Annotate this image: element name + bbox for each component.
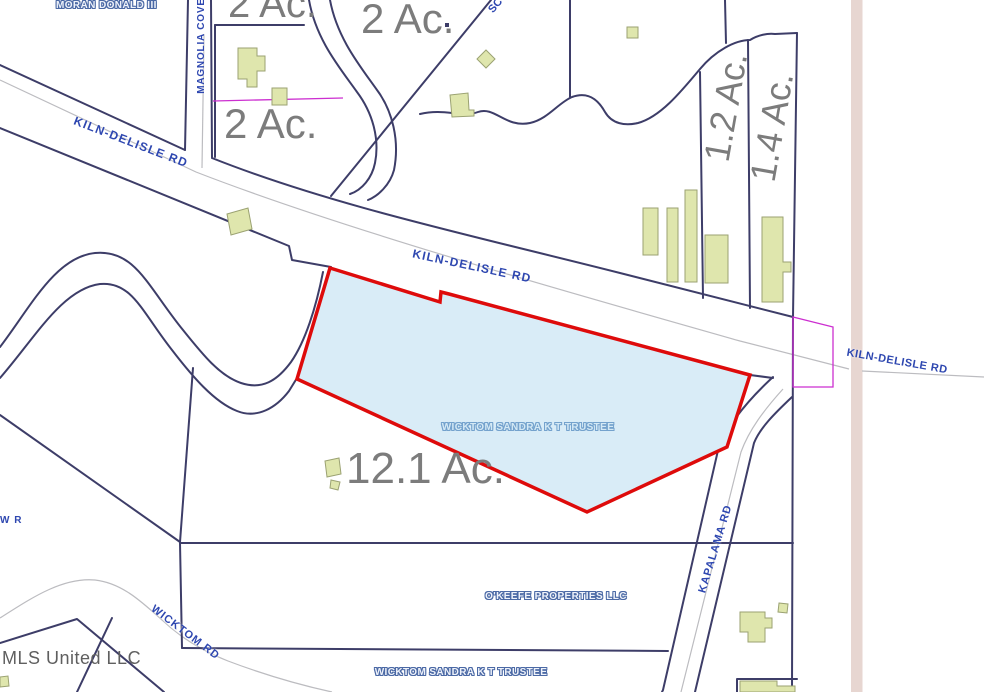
- parcel-line-horizontal-south: [182, 648, 668, 651]
- parcel-line-diagonal-west: [0, 415, 180, 542]
- acreage-label-top-center: 2 Ac.: [361, 0, 454, 40]
- building-footprint: [330, 480, 340, 490]
- road-label-magnolia-cove: MAGNOLIA COVE: [197, 0, 207, 94]
- acreage-label-top-left: 2 Ac.: [228, 0, 317, 24]
- owner-label-highlight-parcel: WICKTOM SANDRA K T TRUSTEE: [442, 423, 615, 433]
- boundary-stripe: [851, 0, 863, 692]
- magenta-polygon-east: [793, 317, 833, 387]
- building-footprint: [643, 208, 658, 255]
- parcel-map: MORAN DONALD III WICKTOM SANDRA K T TRUS…: [0, 0, 984, 692]
- building-footprint: [325, 458, 341, 477]
- building-footprint: [705, 235, 728, 283]
- building-footprint: [627, 27, 638, 38]
- building-footprint: [740, 681, 795, 692]
- parcel-map-canvas: [0, 0, 984, 692]
- owner-label-okeefe: O'KEEFE PROPERTIES LLC: [485, 592, 627, 602]
- creek-scurve-inner: [0, 284, 297, 414]
- building-footprint: [667, 208, 678, 282]
- parcel-line-vertical-725: [725, 0, 726, 43]
- strip-12ac-west-line: [700, 72, 703, 298]
- building-footprint: [0, 676, 9, 687]
- building-footprint: [477, 50, 495, 68]
- building-footprint: [227, 208, 252, 235]
- magnolia-west-edge: [185, 0, 188, 150]
- acreage-label-highlight: 12.1 Ac.: [346, 447, 505, 491]
- wicktom-rd-centerline: [0, 580, 332, 692]
- magnolia-east-edge: [211, 0, 212, 157]
- building-footprint: [450, 93, 474, 117]
- road-label-partial-west: W R: [0, 516, 22, 526]
- building-footprint: [778, 603, 788, 613]
- building-footprint: [740, 612, 772, 642]
- acreage-label-mid-left: 2 Ac.: [224, 103, 317, 145]
- kiln-north-edge-west: [0, 65, 185, 150]
- owner-label-wicktom-south: WICKTOM SANDRA K T TRUSTEE: [375, 668, 548, 678]
- mls-watermark: MLS United LLC: [2, 649, 141, 667]
- parcel-line-vertical-west: [180, 368, 193, 542]
- building-footprint: [762, 217, 791, 302]
- kiln-kapalama-junction: [750, 375, 773, 378]
- building-footprint: [685, 190, 697, 282]
- owner-label-moran: MORAN DONALD III: [56, 1, 157, 11]
- building-footprint: [238, 48, 265, 87]
